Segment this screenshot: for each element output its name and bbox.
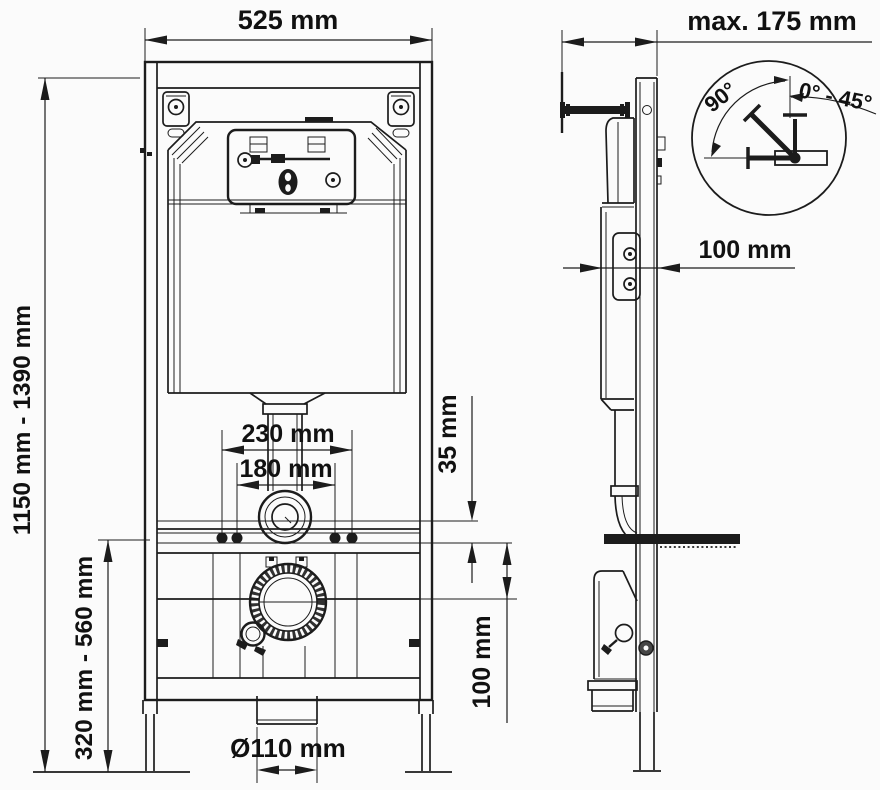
- dimension-wall-clearance: max. 175 mm: [562, 6, 872, 76]
- top-bracket-left: [163, 92, 189, 137]
- dimension-outlet-diameter: Ø110 mm: [230, 727, 346, 783]
- fixing-outer-label: 230 mm: [241, 420, 334, 448]
- side-view: max. 175 mm 100 mm: [560, 6, 872, 771]
- cistern-profile: [601, 118, 640, 410]
- fixing-inner-label: 180 mm: [239, 455, 332, 483]
- wall-clearance-label: max. 175 mm: [687, 6, 857, 36]
- dimension-outlet-drop: 100 mm: [468, 543, 512, 723]
- drain-socket: [236, 557, 326, 656]
- height-range-label: 1150 mm - 1390 mm: [9, 305, 36, 535]
- fixing-bolt: [232, 533, 243, 544]
- frame-post: [633, 78, 665, 771]
- fixing-bolt: [330, 533, 341, 544]
- top-bracket-right: [388, 92, 414, 137]
- flush-pipe-profile: [611, 410, 638, 542]
- mounting-rails: [157, 521, 517, 678]
- pan-mounting-studs: [604, 534, 740, 547]
- dimension-fixing-inner: 180 mm: [237, 455, 335, 534]
- service-panel: [228, 130, 355, 213]
- outlet-diameter-label: Ø110 mm: [230, 733, 346, 763]
- push-rod: [251, 155, 260, 164]
- technical-drawing: 525 mm 1150 mm - 1390 mm 320 mm - 560 mm…: [0, 0, 880, 790]
- rail-offset-label: 35 mm: [434, 394, 462, 473]
- sweep-angle-label: 90°: [700, 77, 742, 117]
- left-adjuster-screw: [157, 639, 168, 647]
- lower-height-range-label: 320 mm - 560 mm: [71, 556, 98, 760]
- fixing-bolt: [347, 533, 358, 544]
- outlet-drop-label: 100 mm: [468, 615, 496, 708]
- dimension-rail-offset: 35 mm: [434, 394, 477, 583]
- detail-circle: 90° 0° - 45°: [692, 61, 876, 215]
- right-adjuster-screw: [409, 639, 420, 647]
- inlet-connection: [242, 623, 265, 646]
- dimension-lower-height-range: 320 mm - 560 mm: [71, 540, 150, 772]
- drain-elbow-profile: [588, 571, 653, 711]
- front-view: 525 mm 1150 mm - 1390 mm 320 mm - 560 mm…: [9, 5, 517, 783]
- dimension-front-width: 525 mm: [145, 5, 432, 62]
- dimension-frame-depth: 100 mm: [563, 236, 795, 273]
- adjust-range-label: 0° - 45°: [797, 77, 874, 116]
- frame-depth-label: 100 mm: [698, 236, 791, 264]
- wall-anchor: [560, 72, 630, 133]
- front-width-label: 525 mm: [238, 5, 339, 35]
- fixing-bolt: [217, 533, 228, 544]
